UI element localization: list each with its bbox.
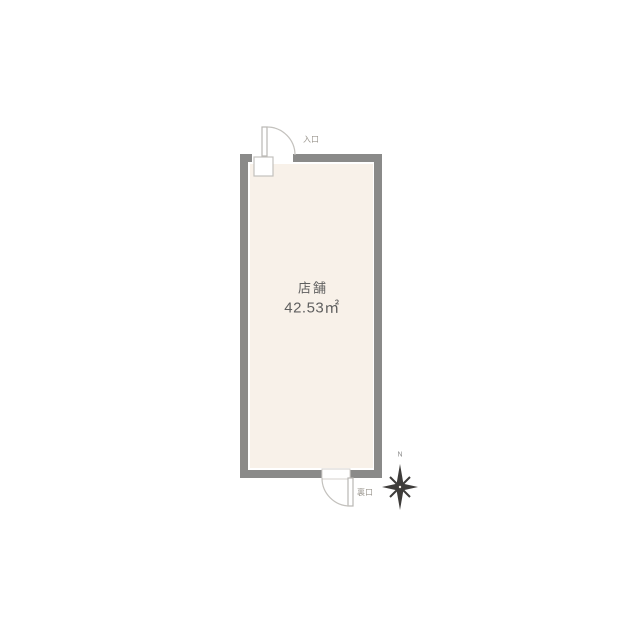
compass-rose <box>382 464 418 510</box>
room-area-label: 42.53㎡ <box>284 301 340 316</box>
entrance-jamb <box>254 157 273 176</box>
wall-bottom-left <box>240 470 322 478</box>
compass-north-label: N <box>397 452 402 459</box>
wall-left <box>240 154 248 478</box>
wall-right <box>374 154 382 478</box>
back-door-arc <box>322 478 350 506</box>
room-name-label: 店舗 <box>298 282 328 295</box>
compass-center-dot <box>399 486 401 488</box>
back-door-threshold <box>322 469 350 479</box>
wall-top-left-stub <box>240 154 254 162</box>
back-door-label: 裏口 <box>357 489 373 497</box>
back-door-leaf <box>348 478 353 506</box>
wall-bottom-right-stub <box>350 470 382 478</box>
floorplan-image: 店舗 42.53㎡ 入口 裏口 N <box>0 0 640 640</box>
entrance-door-leaf <box>262 127 267 156</box>
back-door <box>322 469 353 506</box>
floorplan-drawing <box>0 0 640 640</box>
entrance-label: 入口 <box>303 136 319 144</box>
wall-top <box>293 154 382 162</box>
entrance-door-arc <box>267 127 295 155</box>
